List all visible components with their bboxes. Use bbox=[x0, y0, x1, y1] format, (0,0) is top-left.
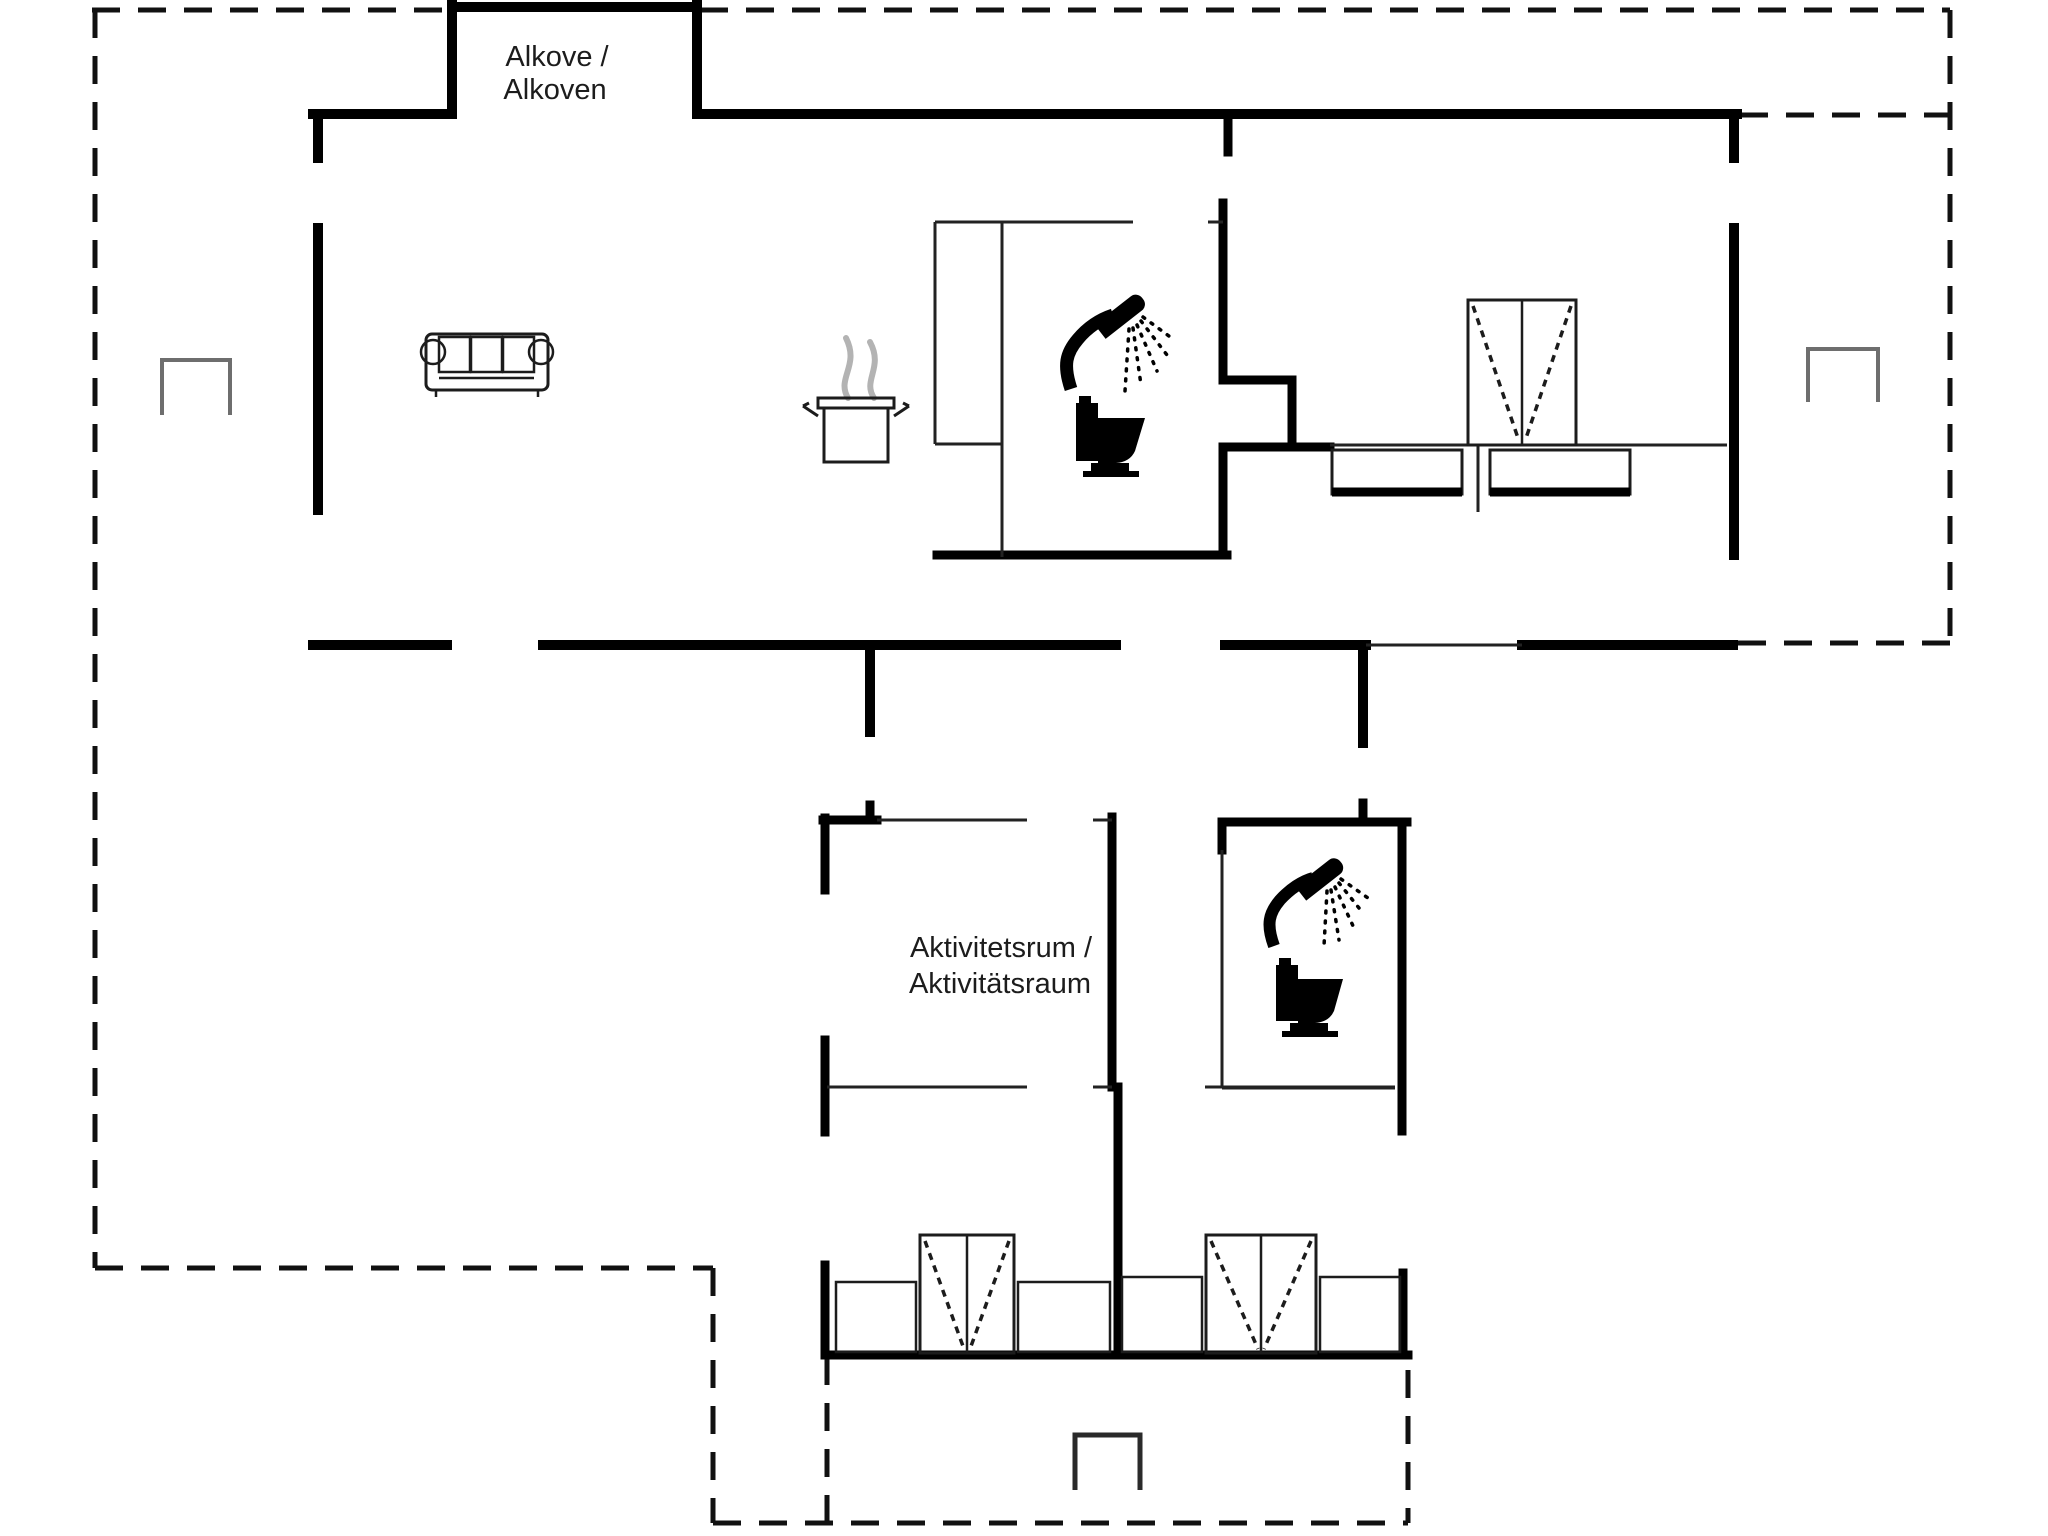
mattress-left bbox=[1332, 450, 1462, 494]
bedside-box bbox=[836, 1282, 916, 1352]
alcove-label-line2: Alkoven bbox=[503, 74, 606, 106]
toilet-base bbox=[1290, 1023, 1328, 1031]
sofa-body bbox=[426, 334, 548, 390]
wardrobe-icon bbox=[920, 1235, 1014, 1353]
activity-room-label-line2: Aktivitätsraum bbox=[909, 968, 1091, 1000]
terrace-marker-icon bbox=[1808, 349, 1878, 402]
alcove-label-line1: Alkove / bbox=[505, 41, 609, 73]
floor-plan-page: Alkove / Alkoven Aktivitetsrum / Aktivit… bbox=[0, 0, 2048, 1536]
bed-icon bbox=[1332, 450, 1630, 494]
bedside-box bbox=[1122, 1277, 1202, 1352]
toilet-base bbox=[1091, 463, 1129, 471]
pot-handle-right bbox=[894, 403, 909, 416]
toilet-foot bbox=[1083, 471, 1139, 477]
mattress-right bbox=[1490, 450, 1630, 494]
interior-walls bbox=[823, 114, 1408, 1355]
toilet-icon bbox=[1276, 958, 1343, 1037]
terrace-marker-icon bbox=[1075, 1435, 1140, 1490]
toilet-foot bbox=[1282, 1031, 1338, 1037]
sofa-cushion bbox=[471, 337, 502, 372]
shower-icon bbox=[1269, 855, 1368, 946]
shower-icon bbox=[1067, 291, 1173, 391]
steam-lines bbox=[845, 338, 875, 398]
bedroom2-furniture bbox=[836, 1235, 1110, 1353]
bedside-box bbox=[1320, 1277, 1400, 1352]
wardrobe-icon bbox=[1206, 1235, 1316, 1353]
sofa-icon bbox=[421, 334, 553, 397]
bathroom1-icons bbox=[1067, 291, 1173, 477]
wardrobe-icon bbox=[1468, 300, 1576, 445]
terrace-boundary-dashed bbox=[92, 10, 1950, 1523]
toilet-bowl bbox=[1098, 418, 1145, 463]
bedroom3-furniture bbox=[1122, 1235, 1400, 1353]
bathroom2-icons bbox=[1269, 855, 1368, 1037]
bedside-box bbox=[1018, 1282, 1110, 1352]
cooking-pot-icon bbox=[803, 338, 909, 462]
floor-plan-drawing: Alkove / Alkoven Aktivitetsrum / Aktivit… bbox=[0, 0, 2048, 1536]
toilet-tank bbox=[1076, 403, 1098, 461]
pot-handle-left bbox=[803, 403, 818, 416]
toilet-tank bbox=[1276, 965, 1298, 1021]
pot-body bbox=[824, 408, 888, 462]
bedroom1-furniture bbox=[1332, 300, 1630, 494]
room-labels: Alkove / Alkoven Aktivitetsrum / Aktivit… bbox=[503, 41, 1093, 1000]
toilet-icon bbox=[1076, 396, 1145, 477]
toilet-bowl bbox=[1298, 979, 1343, 1023]
activity-room-label-line1: Aktivitetsrum / bbox=[910, 932, 1093, 964]
shower-spray bbox=[1125, 317, 1173, 391]
terrace-marker-icon bbox=[162, 360, 230, 415]
terrace-markers bbox=[162, 349, 1878, 1490]
shower-spray bbox=[1324, 879, 1368, 946]
